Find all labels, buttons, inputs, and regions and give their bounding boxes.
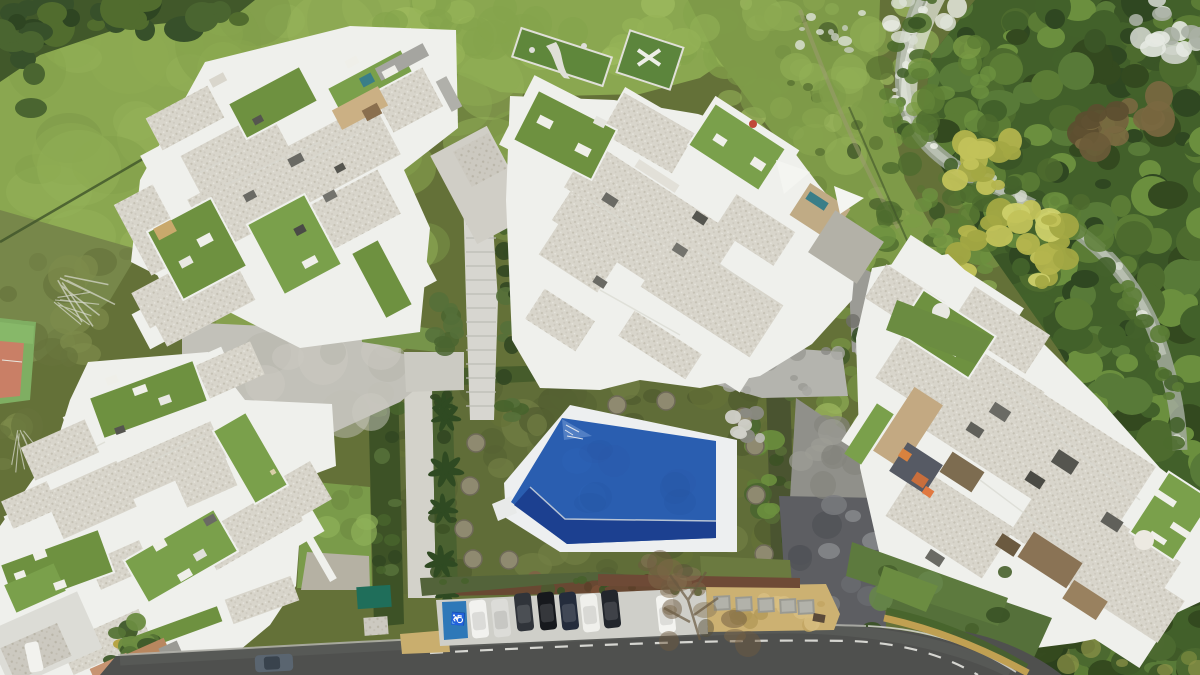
svg-text:♿: ♿ <box>450 611 465 627</box>
